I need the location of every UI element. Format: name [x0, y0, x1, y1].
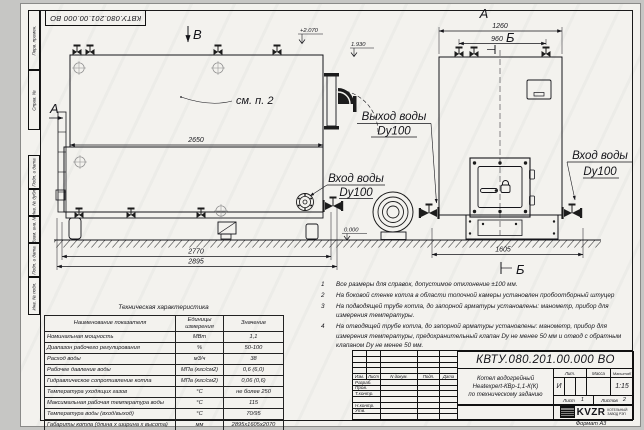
title-block: Изм. Лист N докум. Подп. Дата Разраб. Пр…	[352, 350, 633, 421]
title-block-revision-grid: Изм. Лист N докум. Подп. Дата Разраб. Пр…	[353, 351, 458, 420]
elevation-outlet: 1.930	[351, 42, 366, 48]
section-letter-b-top: Б	[506, 30, 515, 45]
inlet-left-label-line1: Вход воды	[328, 173, 384, 185]
dim-2650: 2650	[187, 137, 204, 144]
format-label: Формат А3	[552, 421, 630, 427]
inlet-right-label-line1: Вход воды	[572, 150, 628, 162]
elevation-ground: 0.000	[344, 228, 359, 234]
dim-1260: 1260	[492, 23, 508, 30]
note-item: 2 На боковой стенке котла в области топо…	[321, 291, 628, 300]
inlet-left-label-line2: Dy100	[339, 187, 373, 199]
dim-1605: 1605	[495, 247, 511, 254]
outlet-label-line2: Dy100	[377, 126, 411, 138]
masshtab-value: 1:15	[610, 377, 634, 396]
view-letter-b: В	[193, 27, 202, 42]
dim-2770: 2770	[187, 249, 204, 256]
product-name: Котел водогрейный Heatexpert-КВр-1,1-К(К…	[457, 368, 554, 405]
boiler-front-view	[439, 50, 562, 239]
kvzr-logo-text: KVZR	[577, 407, 606, 418]
table-row: Номинальная мощностьМВт1,1	[45, 332, 284, 343]
note-item: 3 На подводящей трубе котла, до запорной…	[321, 302, 628, 321]
spec-section: Техническая характеристика Наименование …	[44, 302, 283, 430]
ground-line	[54, 240, 601, 248]
kvzr-logo-subtext: КОТЕЛЬНЫЙ ЗАВОД РЭП	[607, 408, 627, 416]
empty-cell	[457, 405, 554, 420]
table-row: Температура уходящих газов°Сне более 250	[45, 387, 284, 398]
table-row: Рабочее давление водыМПа (кгс/см2)0,6 (6…	[45, 365, 284, 376]
table-row: Температура воды (вход/выход)°С70/95	[45, 409, 284, 420]
table-row: Максимальная рабочая температура воды°С1…	[45, 398, 284, 409]
side-view-dimensions	[49, 26, 437, 270]
manufacturer-logo: KVZR КОТЕЛЬНЫЙ ЗАВОД РЭП	[553, 405, 634, 420]
spec-header-row: Наименование показателя Единицы измерени…	[45, 316, 284, 332]
notes-list: 1 Все размеры для справок, допустимое от…	[321, 280, 628, 352]
spec-table-title: Техническая характеристика	[44, 302, 283, 315]
kvzr-logo-icon	[560, 406, 575, 418]
table-row: Гидравлическое сопротивление котлаМПа (к…	[45, 376, 284, 387]
spec-table: Наименование показателя Единицы измерени…	[44, 315, 284, 430]
dim-960: 960	[491, 36, 503, 43]
note-reference: см. п. 2	[236, 95, 273, 107]
table-row: Габариты котла (длина х ширина х высота)…	[45, 420, 284, 430]
section-letter-b-bottom: Б	[516, 262, 525, 277]
section-letter-a-side: А	[49, 101, 59, 116]
outlet-label-line1: Выход воды	[362, 111, 427, 123]
elevation-top: +2.070	[300, 28, 319, 34]
table-row: Расход водым3/ч38	[45, 354, 284, 365]
burner-base	[381, 232, 406, 240]
screenshot-root: КВТУ.080.201.00.000 ВО Перв. примен. Спр…	[0, 0, 644, 430]
inlet-right-label-line2: Dy100	[583, 166, 617, 178]
view-letter-a-front: А	[479, 6, 489, 21]
doc-number: КВТУ.080.201.00.000 ВО	[457, 351, 634, 369]
table-row: Диапазон рабочего регулирования%50-100	[45, 343, 284, 354]
note-item: 1 Все размеры для справок, допустимое от…	[321, 280, 628, 289]
note-item: 4 На отводящей трубе котла, до запорной …	[321, 322, 628, 350]
massa-value	[586, 377, 611, 396]
dim-2895: 2895	[187, 259, 204, 266]
boiler-side-view	[56, 55, 378, 239]
